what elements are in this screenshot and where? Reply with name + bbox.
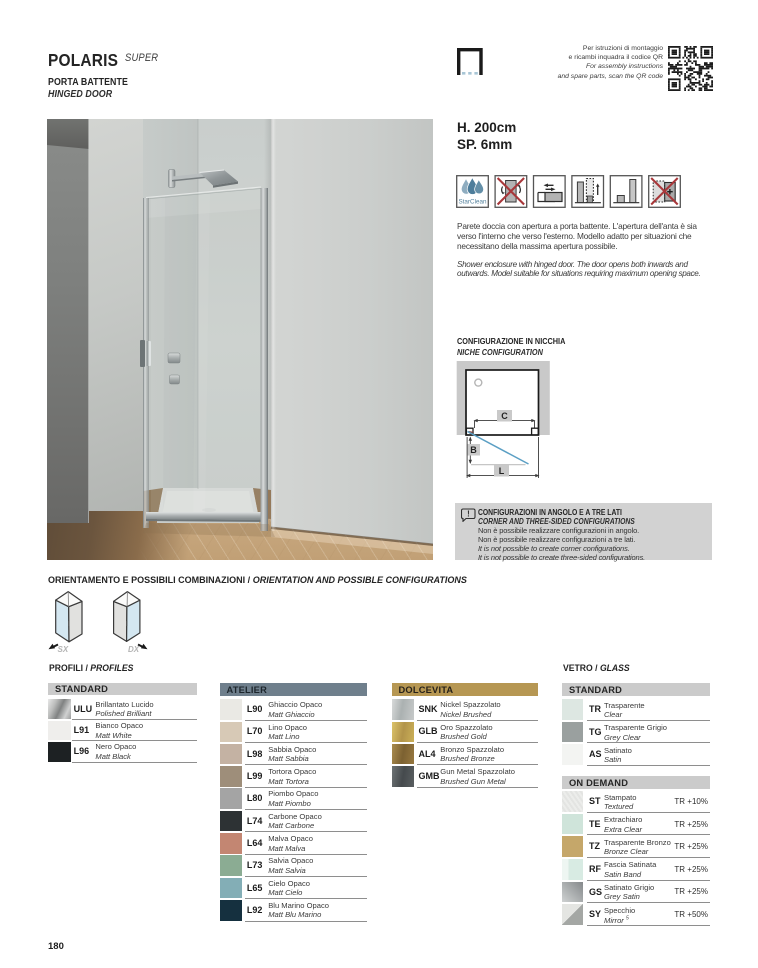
svg-text:StarClean: StarClean [458,198,486,205]
svg-text:!: ! [467,510,470,519]
svg-text:DX: DX [128,645,140,654]
svg-text:B: B [470,445,477,455]
svg-text:C: C [501,411,508,421]
svg-text:L: L [499,466,505,476]
svg-text:SX: SX [58,645,69,654]
